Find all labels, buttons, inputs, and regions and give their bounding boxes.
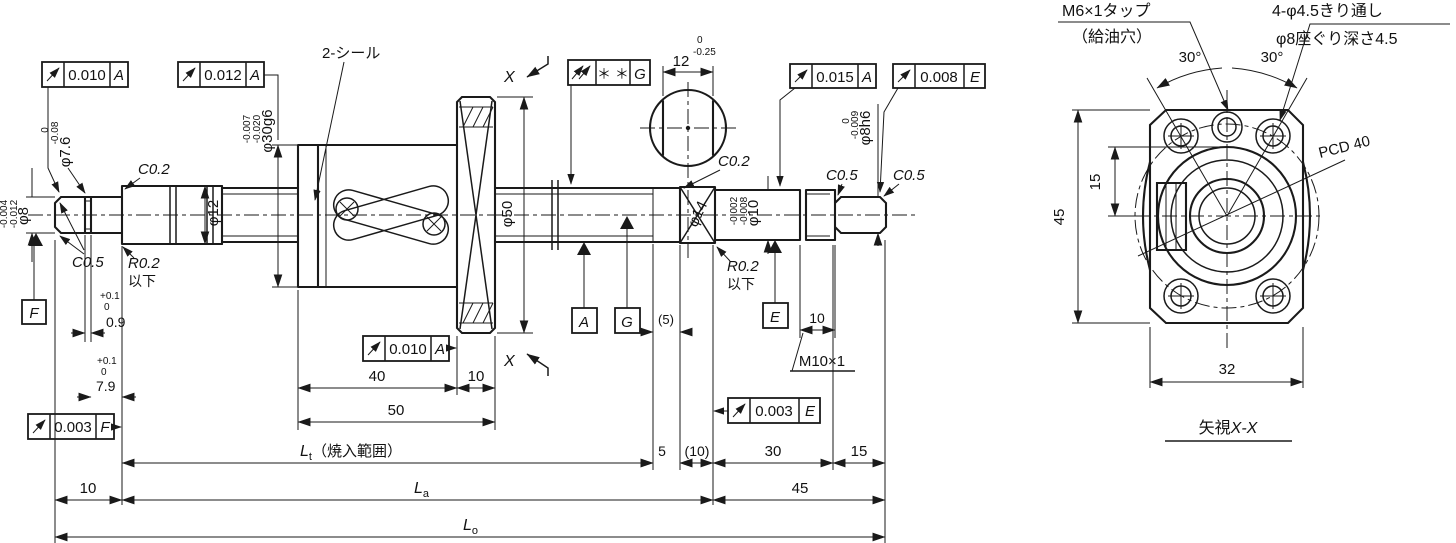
oil-hole-note-line2: （給油穴） [1072,28,1152,46]
gdt-frame-7: 0.003 F [28,414,121,439]
datum-a: A [572,242,597,333]
phi50-dim: φ50 [499,201,516,227]
hardening-range-dim: Lt（焼入範囲） [300,442,402,463]
phi30g6-tol-lower: -0.020 [252,114,263,143]
angle-arc-left [1157,68,1222,88]
gdt4-value: 0.015 [816,69,854,86]
gdt7-datum: F [100,419,110,436]
bolt-hole [1164,279,1198,313]
dim-45: 45 [792,480,809,497]
bolt-hole-note-line2: φ8座ぐり深さ4.5 [1276,30,1398,48]
phi8h6-tol-lower: -0.009 [850,110,861,139]
flats-tol-upper: 0 [697,35,703,46]
gdt-frame-3: ＊ ＊ G [568,60,650,184]
gdt2-value: 0.012 [204,67,242,84]
datum-g-label: G [621,314,633,331]
datum-f: F [22,233,46,324]
datum-g: G [615,216,640,333]
thread-length-dim: 10 [809,310,825,326]
dim-lo: Lo [463,517,478,537]
groove-width-tol-lower: 0 [104,302,110,313]
gdt3-datum: G [634,66,646,83]
section-x-top-label: X [503,69,516,86]
phi12-dim: φ12 [205,200,222,226]
oil-hole-note-line1: M6×1タップ [1062,2,1150,20]
seal-leader [315,62,344,200]
thread-spec-label: M10×1 [799,353,845,370]
gdt1-datum: A [113,67,124,84]
datum-a-label: A [578,314,589,331]
gdt7-value: 0.003 [54,419,92,436]
chamfer-c02-right-label: C0.2 [718,153,750,170]
chamfer-c05-right-label: C0.5 [893,167,925,184]
ballscrew-technical-drawing: 2-シール 12 0 -0.25 X X φ8 -0.004 -0.012 φ7… [0,0,1456,543]
phi14-dim: φ14 [685,199,712,230]
datum-e: E [763,240,788,328]
chamfer-c05-left-label: C0.5 [72,254,104,271]
gdt3-value: ＊ ＊ [597,66,629,82]
groove-position-tol-lower: 0 [101,367,107,378]
gdt5-value: 0.008 [920,69,958,86]
flats-tol-lower: -0.25 [693,47,716,58]
datum-f-label: F [29,305,39,322]
gdt2-datum: A [249,67,260,84]
dim-10-ref: (10) [685,443,710,459]
angle-left-label: 30° [1179,49,1202,66]
endview-dim-15: 15 [1087,174,1104,191]
end-view: 30° 30° M6×1タップ （給油穴） 4-φ4.5きり通し φ8座ぐり深さ… [1051,2,1450,441]
fillet-r02-left-note: 以下 [128,273,156,289]
seal-count-label: 2-シール [322,45,380,62]
endview-dim-45: 45 [1051,209,1068,226]
bolt-hole-note-line1: 4-φ4.5きり通し [1272,2,1383,20]
groove-position-dim: 7.9 [96,378,116,394]
dim-la: La [414,480,430,500]
groove-width-tol-upper: +0.1 [100,291,120,302]
endview-dim-32: 32 [1219,361,1236,378]
nut-body-length-dim: 40 [369,368,386,385]
main-view: 2-シール 12 0 -0.25 X X φ8 -0.004 -0.012 φ7… [0,35,985,543]
dim-5: 5 [658,443,666,459]
gdt6-datum: A [434,341,445,358]
dim-30: 30 [765,443,782,460]
section-x-bottom-label: X [503,353,516,370]
groove-width-dim: 0.9 [106,314,126,330]
view-title: 矢視X-X [1199,419,1259,437]
datum-e-label: E [770,309,781,326]
gdt-frame-8: 0.003 E [714,398,820,423]
flats-width-dim: 12 [673,53,690,70]
gdt8-value: 0.003 [755,403,793,420]
drawing-canvas: 2-シール 12 0 -0.25 X X φ8 -0.004 -0.012 φ7… [0,0,1456,543]
left-journal-length-dim: 10 [80,480,97,497]
chamfer-c02-left-label: C0.2 [138,161,170,178]
pcd-leader [1138,160,1345,256]
gdt8-datum: E [805,403,816,420]
phi8-tol-lower: -0.012 [9,199,20,228]
fillet-r02-right-label: R0.2 [727,258,759,275]
phi76-leader [68,168,85,193]
pcd-label: PCD 40 [1317,133,1372,162]
angle-right-label: 30° [1261,49,1284,66]
fillet-r02-right-note: 以下 [727,276,755,292]
phi10-tol-lower: -0.008 [739,196,750,225]
nut-total-length-dim: 50 [388,402,405,419]
phi76-tol-lower: -0.08 [50,121,61,144]
gdt1-value: 0.010 [68,67,106,84]
gdt4-datum: A [861,69,872,86]
gdt-frame-6: 0.010 A [363,336,456,361]
chamfer-c05-mid-label: C0.5 [826,167,858,184]
bolt-hole [1256,279,1290,313]
groove-position-tol-upper: +0.1 [97,356,117,367]
thread-runout-ref-dim: (5) [658,312,674,327]
angle-arc-right [1232,68,1297,88]
flange-width-dim: 10 [468,368,485,385]
gdt6-value: 0.010 [389,341,427,358]
gdt5-datum: E [970,69,981,86]
dim-15: 15 [851,443,868,460]
